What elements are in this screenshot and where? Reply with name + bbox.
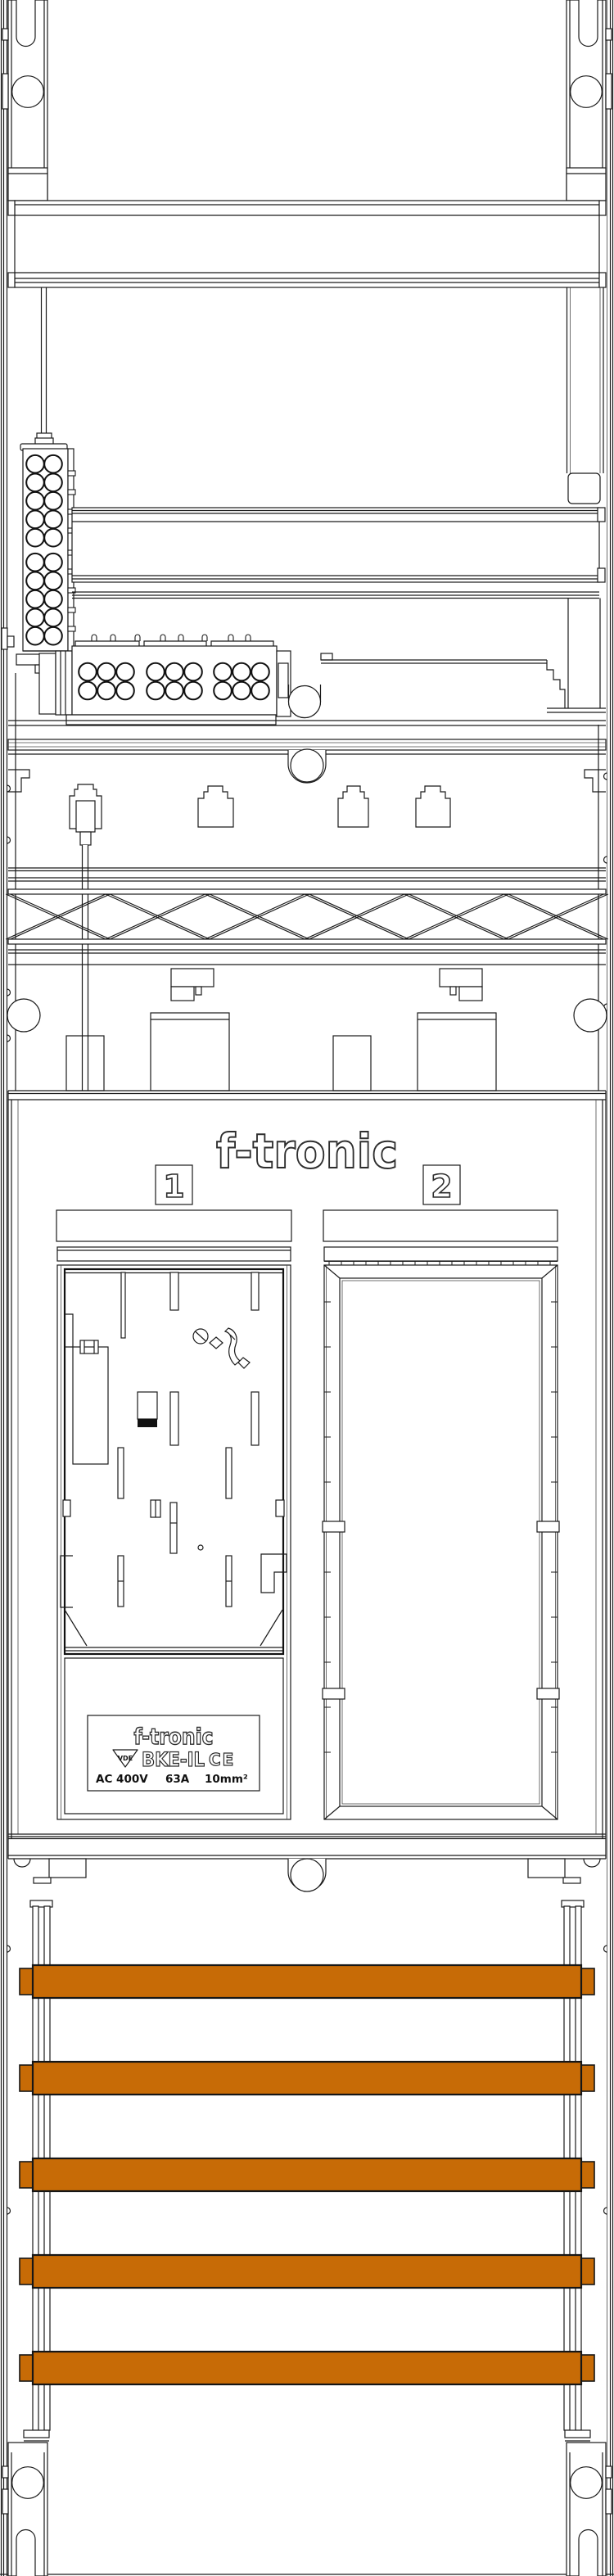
horizontal-terminal-strip: [39, 599, 606, 725]
strip-terminal-holes: [79, 663, 269, 700]
field-2-badge: 2: [423, 1165, 460, 1204]
field-1-name-plate: [56, 1210, 291, 1241]
connector-socket: [338, 786, 368, 827]
mid-side-rails: [7, 673, 607, 1091]
top-right-mounting-rail: [567, 0, 612, 201]
strip-top-tabs: [92, 635, 251, 641]
connector-row: [70, 784, 450, 1091]
lower-crossbar: [72, 508, 605, 599]
svg-text:VDE: VDE: [118, 1755, 133, 1762]
upper-crossbar: [8, 201, 606, 287]
field-1-bke-plate: f-tronic VDE BKE-IL CE AC 400V 63A 10mm²: [57, 1265, 291, 1819]
connector-socket: [198, 786, 233, 827]
svg-text:1: 1: [163, 1168, 184, 1204]
brand-logo: f-tronic: [216, 1123, 398, 1179]
right-side-rail-upper: [567, 287, 604, 504]
busbar-section: [20, 1900, 594, 2441]
panel-bottom-fittings: [14, 1859, 600, 1891]
field-2-name-plate: [323, 1210, 558, 1241]
label-brand: f-tronic: [134, 1724, 214, 1750]
ce-mark: CE: [209, 1750, 235, 1769]
mid-horizontal-bands: [8, 721, 606, 783]
bottom-right-mounting-rail: [567, 2443, 612, 2576]
connector-socket: [416, 786, 450, 827]
rating-label: f-tronic VDE BKE-IL CE AC 400V 63A 10mm²: [88, 1715, 260, 1791]
terminal-block-hanger: [42, 287, 47, 433]
panel-mounting-feet: [66, 1013, 496, 1091]
label-current: 63A: [165, 1773, 190, 1786]
field-2-top-ticks: [324, 1262, 558, 1266]
label-model: BKE-IL: [142, 1748, 205, 1771]
bottom-left-mounting-rail: [2, 2443, 47, 2576]
meter-panel: f-tronic 1 2: [8, 1091, 606, 1891]
field-2-cover-frame: [323, 1265, 559, 1819]
vertical-terminal-block: [2, 433, 75, 674]
label-wire-section: 10mm²: [205, 1773, 248, 1786]
truss-x-bracing: [6, 894, 608, 939]
field-1-badge: 1: [156, 1165, 192, 1204]
rail-clips: [171, 969, 482, 1001]
busbars: [20, 1965, 594, 2384]
drawing-canvas: f-tronic 1 2: [0, 0, 614, 2576]
cabinet-technical-drawing: f-tronic 1 2: [0, 0, 614, 2576]
svg-text:2: 2: [431, 1168, 452, 1204]
lattice-truss: [6, 868, 608, 965]
label-voltage: AC 400V: [96, 1773, 148, 1786]
top-left-mounting-rail: [2, 0, 47, 201]
